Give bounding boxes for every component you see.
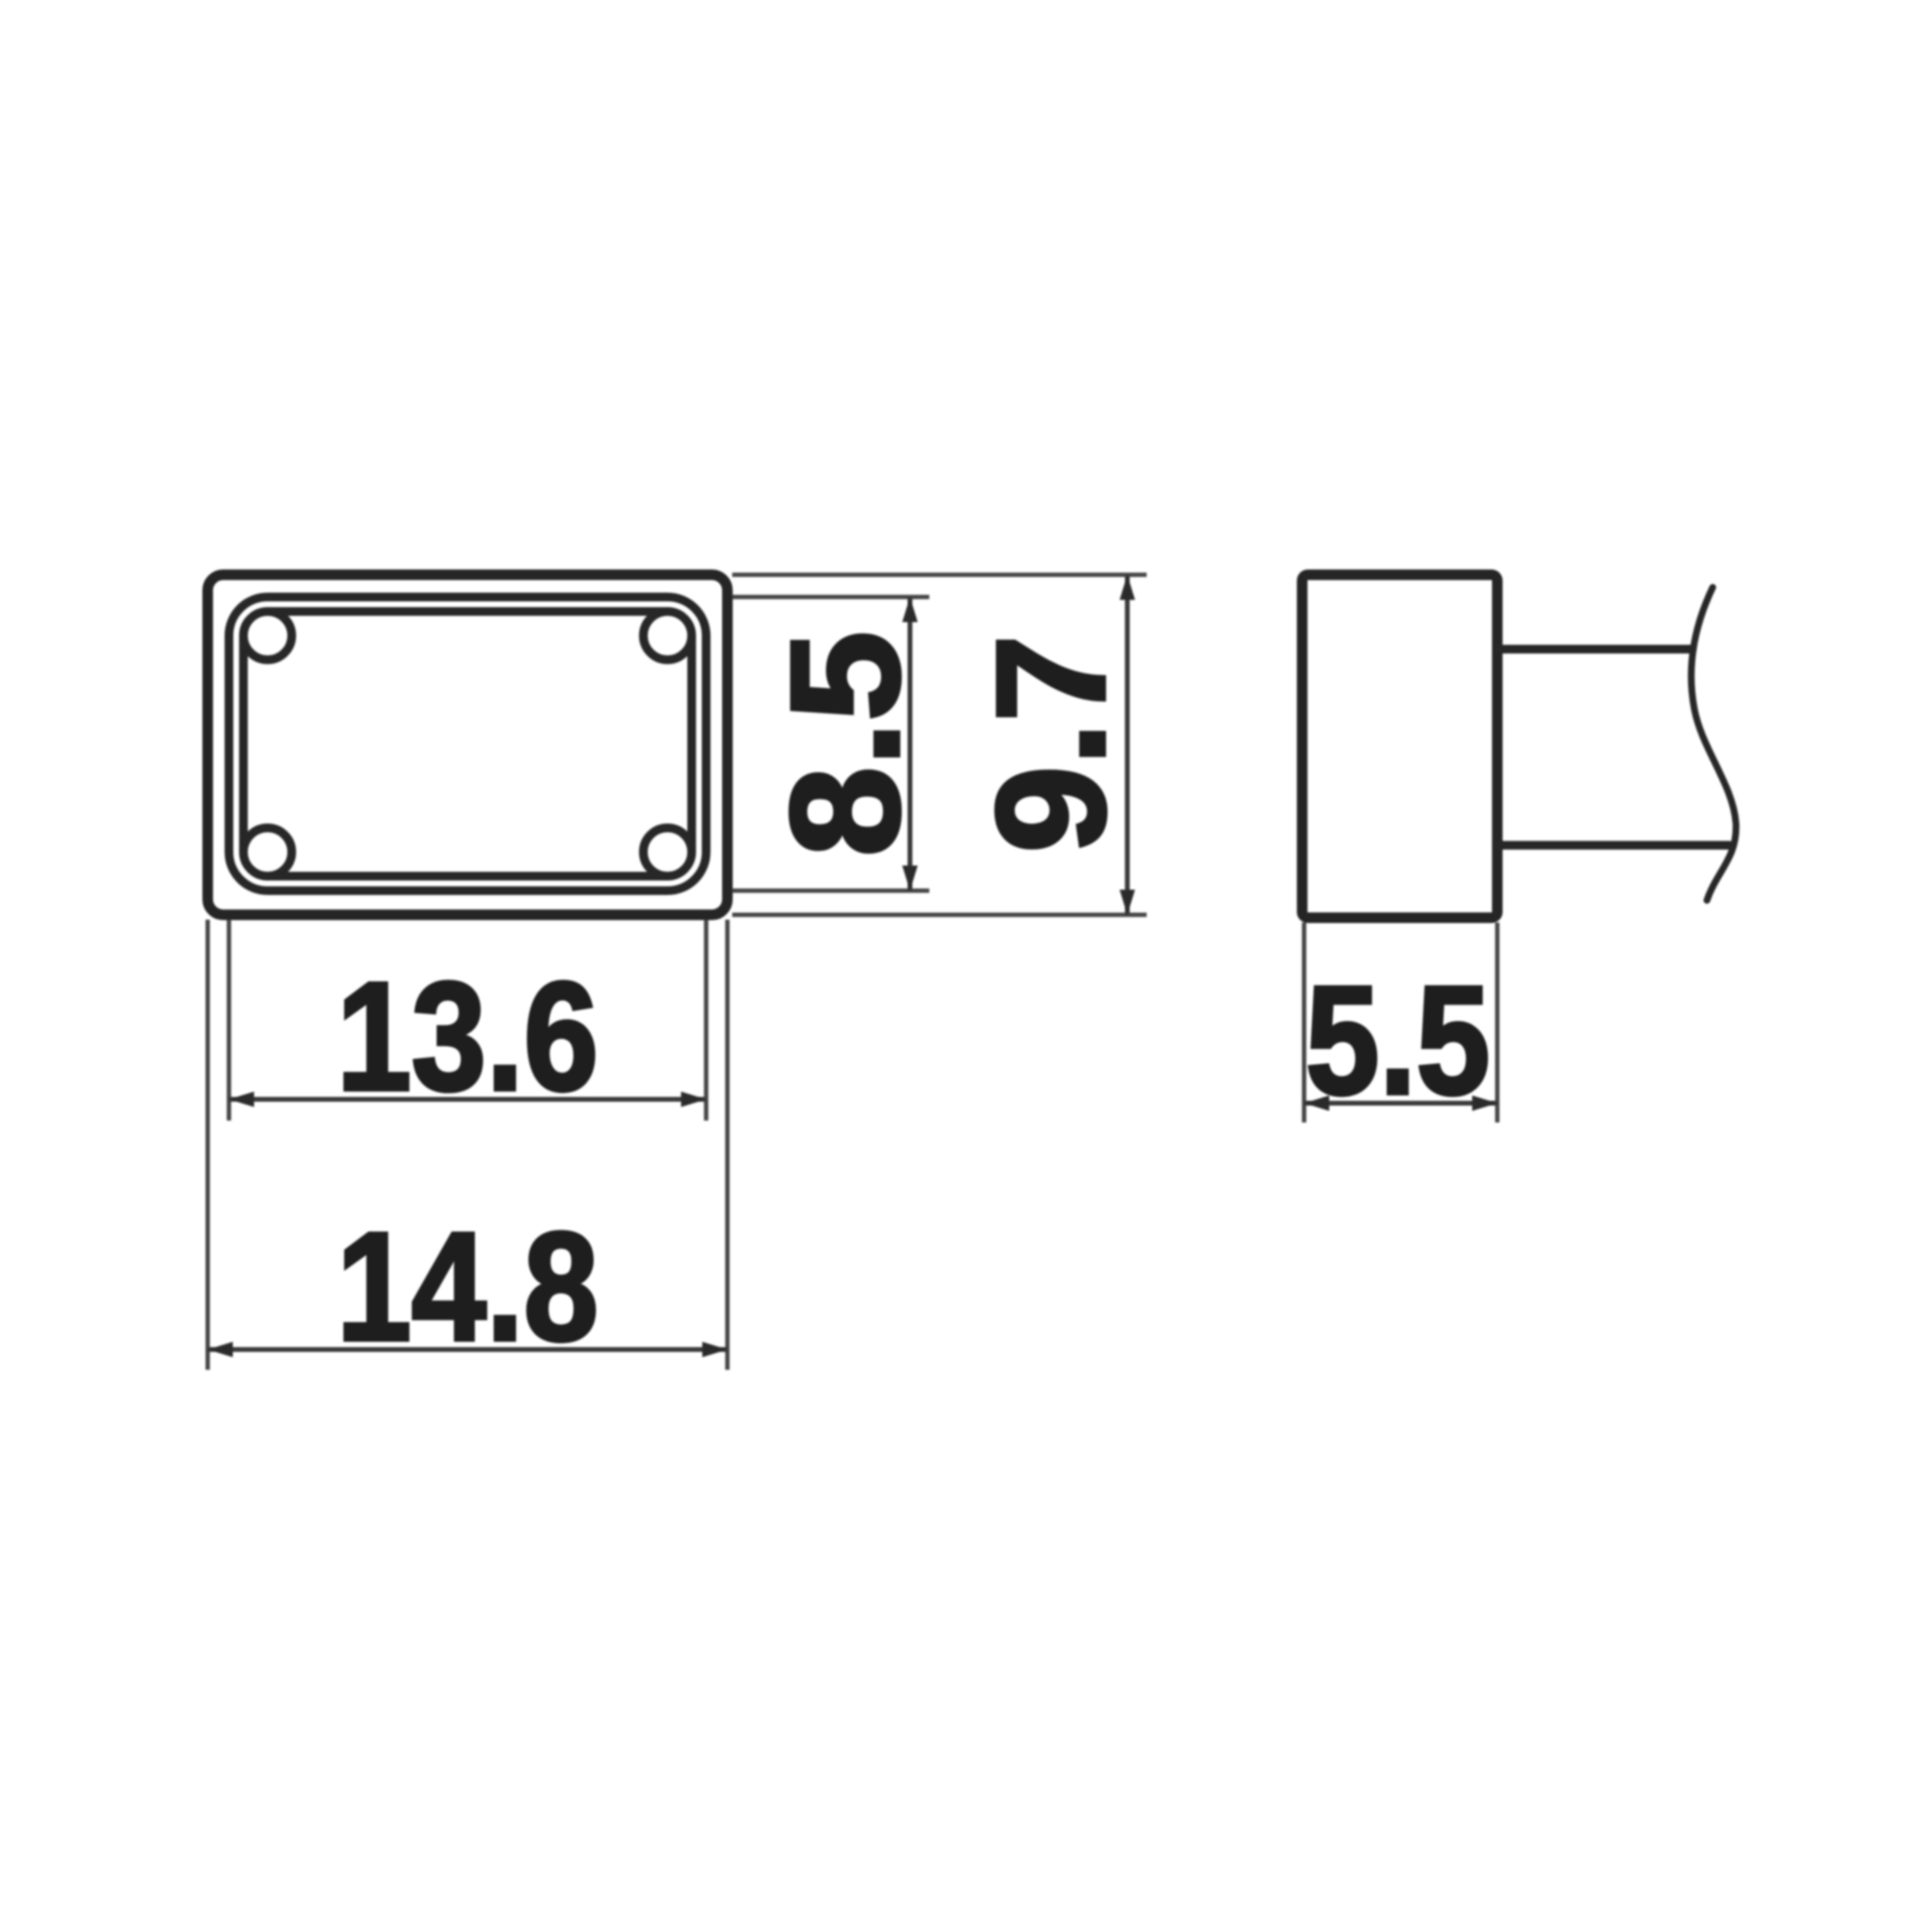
corner-relief-top-left-icon [243, 611, 292, 660]
arrowhead-up-icon [1120, 575, 1135, 600]
corner-relief-top-right-icon [643, 611, 692, 660]
arrowhead-left-icon [229, 1092, 254, 1107]
corner-relief-bottom-left-icon [243, 828, 292, 876]
arrowhead-right-icon [702, 1342, 727, 1357]
drawing-canvas: 8.5 9.7 13.6 14.8 [0, 0, 1932, 1932]
dimension-value-9-7: 9.7 [964, 635, 1137, 853]
arrowhead-left-icon [208, 1342, 233, 1357]
dimension-cavity-width: 13.6 [229, 920, 706, 1122]
arrowhead-down-icon [1120, 890, 1135, 915]
arrowhead-up-icon [902, 597, 918, 622]
dimension-value-5-5: 5.5 [1306, 953, 1491, 1126]
dimension-value-14-8: 14.8 [337, 1200, 599, 1373]
dimension-cavity-height: 8.5 [732, 597, 931, 891]
side-body-outline [1302, 575, 1497, 918]
dimension-tip-depth: 5.5 [1304, 923, 1497, 1126]
dimension-value-8-5: 8.5 [758, 631, 931, 857]
arrowhead-right-icon [681, 1092, 706, 1107]
dimension-value-13-6: 13.6 [337, 950, 599, 1122]
front-view [208, 575, 727, 915]
dimension-drawing: 8.5 9.7 13.6 14.8 [0, 0, 1932, 1932]
corner-relief-bottom-right-icon [643, 828, 692, 876]
break-line-icon [1691, 587, 1736, 900]
side-view [1302, 575, 1736, 918]
arrowhead-down-icon [902, 866, 918, 891]
front-rim-outline [229, 597, 706, 891]
